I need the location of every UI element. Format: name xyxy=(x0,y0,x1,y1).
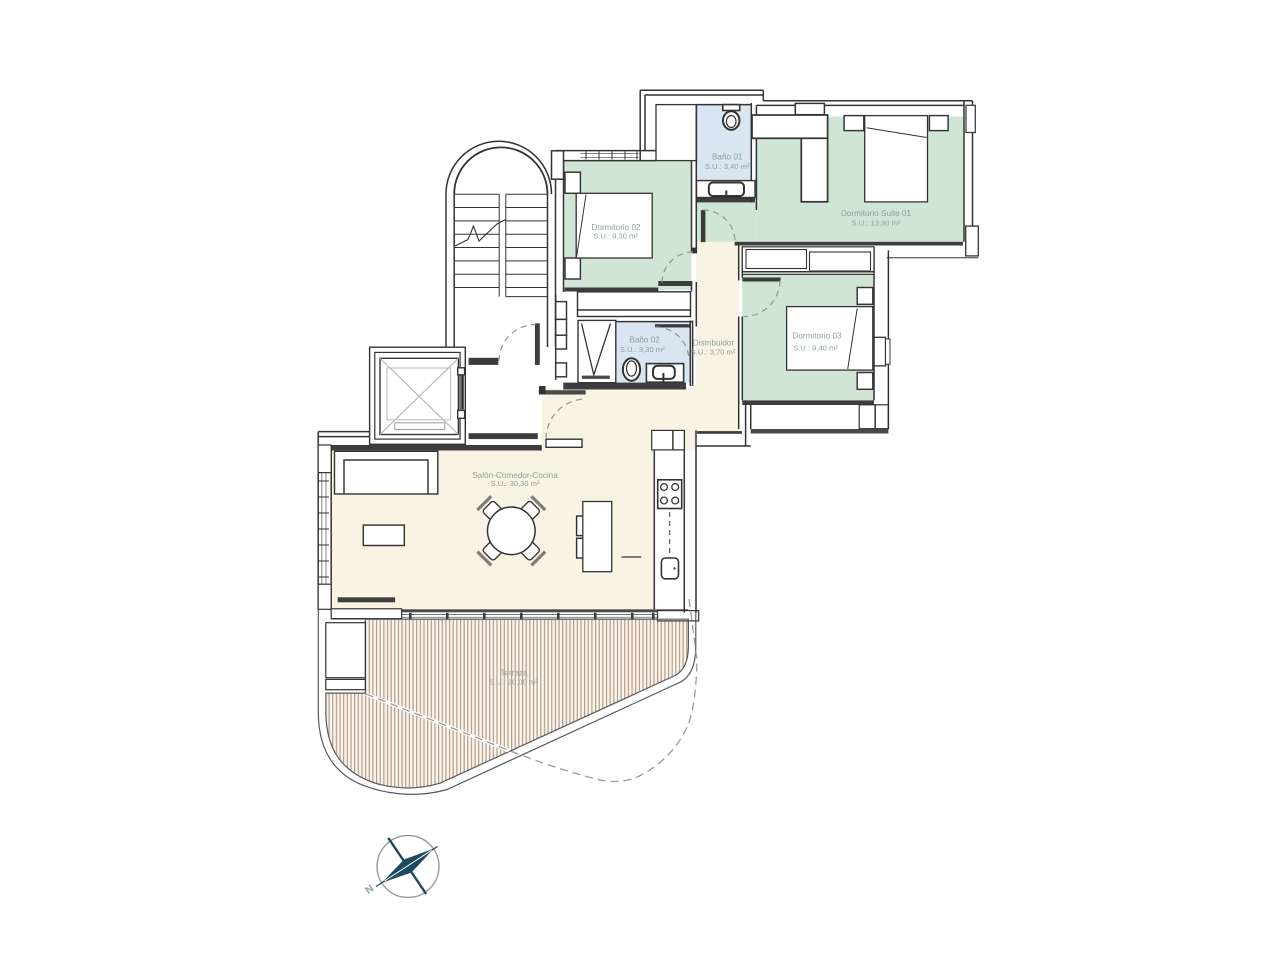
svg-text:Distribuidor: Distribuidor xyxy=(693,339,735,348)
svg-text:S.U.: 9,40 m²: S.U.: 9,40 m² xyxy=(793,344,838,353)
svg-text:S.U.: 9,30 m²: S.U.: 9,30 m² xyxy=(593,231,638,240)
svg-text:Terraza: Terraza xyxy=(500,669,528,678)
svg-text:S.U.: 13,90 m²: S.U.: 13,90 m² xyxy=(852,219,901,228)
svg-text:S.U.: 30,30 m²: S.U.: 30,30 m² xyxy=(491,479,540,488)
svg-text:Dormitorio 03: Dormitorio 03 xyxy=(792,332,842,341)
svg-text:Baño 01: Baño 01 xyxy=(712,153,743,162)
svg-text:S.U.: 3,40 m²: S.U.: 3,40 m² xyxy=(705,162,750,171)
svg-text:Dormitorio Suite 01: Dormitorio Suite 01 xyxy=(841,209,912,218)
svg-text:S.U.: 3,70 m²: S.U.: 3,70 m² xyxy=(691,348,736,357)
svg-text:S.U.: 3,30 m²: S.U.: 3,30 m² xyxy=(620,345,665,354)
svg-text:S.U.: 20,00 m²: S.U.: 20,00 m² xyxy=(489,677,538,686)
svg-text:Baño 02: Baño 02 xyxy=(629,335,660,344)
